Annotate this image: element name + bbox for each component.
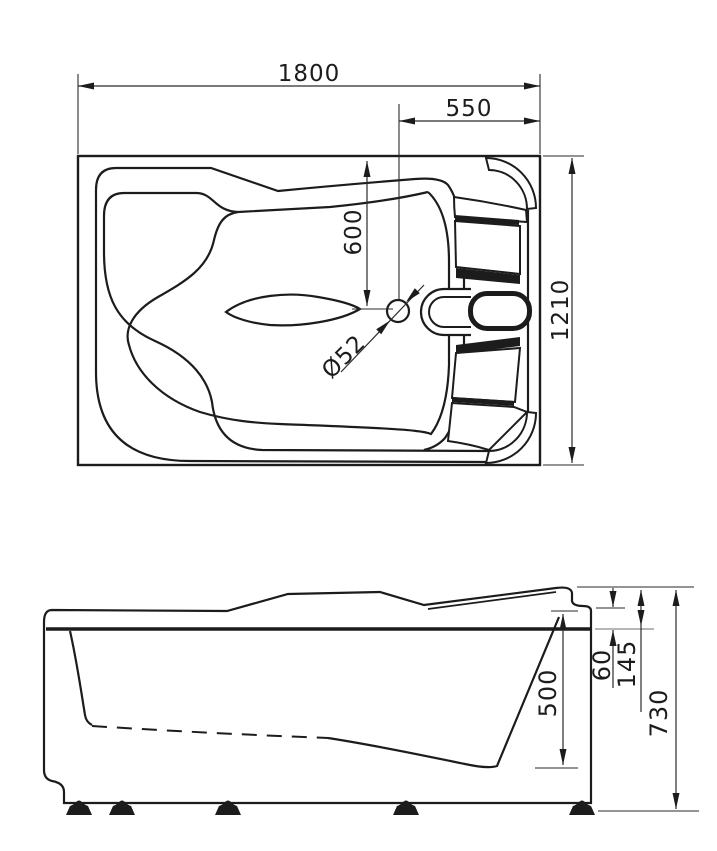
backrest-band-lower-line (428, 592, 556, 609)
headrest-panel-top-2 (455, 221, 520, 274)
faucet-handle (471, 294, 530, 329)
dim-text-overall-width: 1210 (548, 279, 574, 342)
dim-text-drain-to-top: 600 (341, 209, 367, 256)
headrest-panel-bottom-1 (452, 348, 520, 402)
inner-front-wall (70, 631, 92, 725)
side-view-dimensions: 500 60 145 730 (534, 587, 699, 811)
dim-text-backrest-height: 145 (613, 640, 641, 689)
side-view: 500 60 145 730 (44, 587, 699, 815)
dim-text-overall-length: 1800 (278, 61, 341, 87)
side-outer-profile (44, 588, 591, 803)
bathtub-technical-drawing: 1800 550 600 Ø52 1210 (0, 0, 717, 851)
dim-text-overall-height: 730 (645, 689, 673, 738)
dim-text-drain-to-right: 550 (446, 96, 493, 122)
inner-bottom-dashed (92, 726, 328, 738)
inner-bottom-back-slope (328, 617, 559, 767)
dim-text-rim-step: 60 (588, 649, 616, 682)
drawing-page: 1800 550 600 Ø52 1210 (0, 0, 717, 851)
dim-text-inner-depth: 500 (534, 669, 562, 718)
top-view: 1800 550 600 Ø52 1210 (78, 61, 584, 465)
